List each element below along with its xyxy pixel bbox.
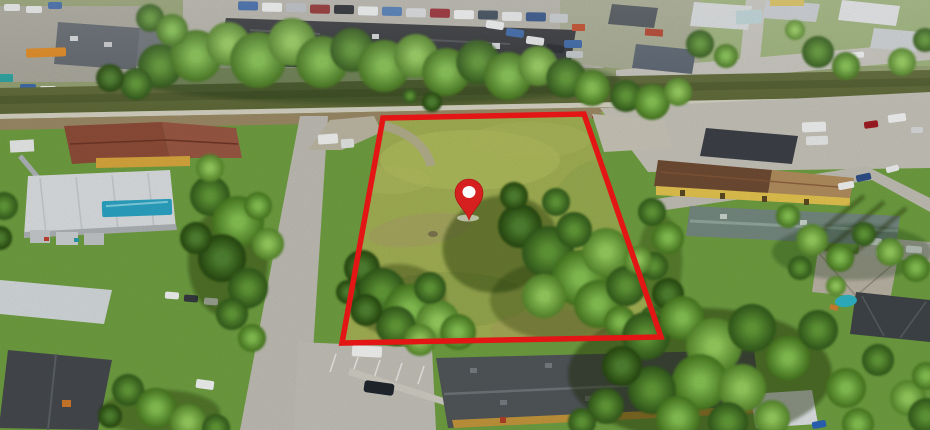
aerial-photo-canvas xyxy=(0,0,930,430)
pin-hole xyxy=(463,186,476,198)
aerial-photo xyxy=(0,0,930,430)
